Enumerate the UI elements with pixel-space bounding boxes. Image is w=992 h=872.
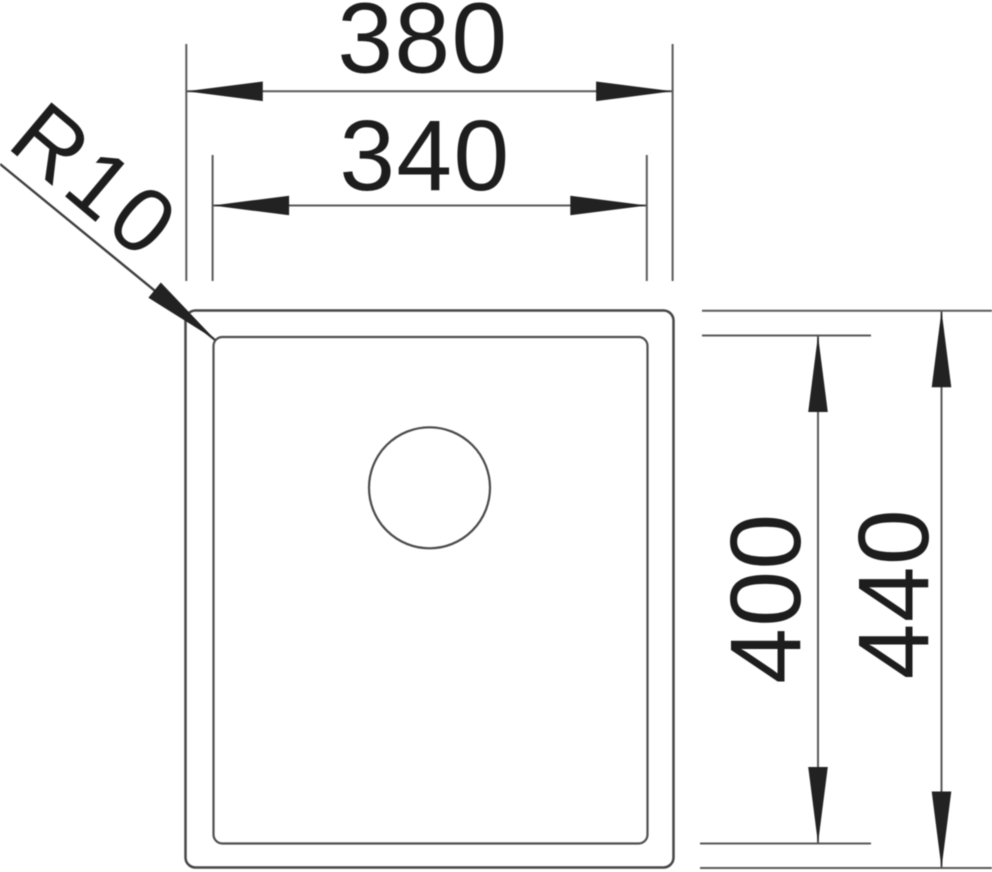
svg-text:380: 380 — [337, 0, 508, 95]
svg-text:400: 400 — [710, 512, 822, 683]
svg-text:440: 440 — [838, 508, 950, 679]
svg-text:340: 340 — [339, 100, 510, 212]
svg-text:R10: R10 — [0, 83, 198, 279]
